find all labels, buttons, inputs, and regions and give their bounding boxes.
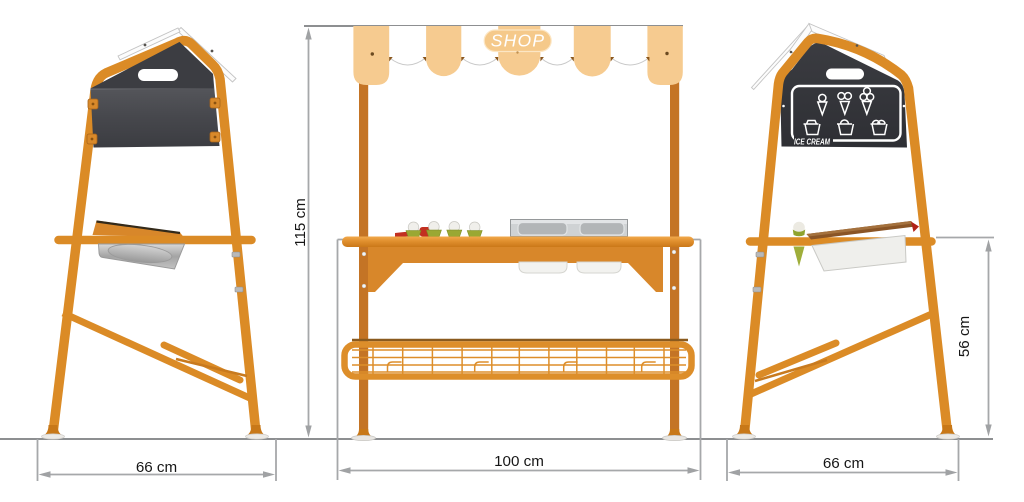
svg-text:56 cm: 56 cm (956, 316, 973, 357)
svg-text:66 cm: 66 cm (823, 455, 864, 472)
svg-text:66 cm: 66 cm (136, 459, 177, 476)
svg-text:100 cm: 100 cm (494, 453, 544, 470)
svg-text:115 cm: 115 cm (292, 198, 309, 247)
svg-text:SHOP: SHOP (491, 31, 545, 51)
svg-text:ICE CREAM: ICE CREAM (794, 138, 830, 147)
